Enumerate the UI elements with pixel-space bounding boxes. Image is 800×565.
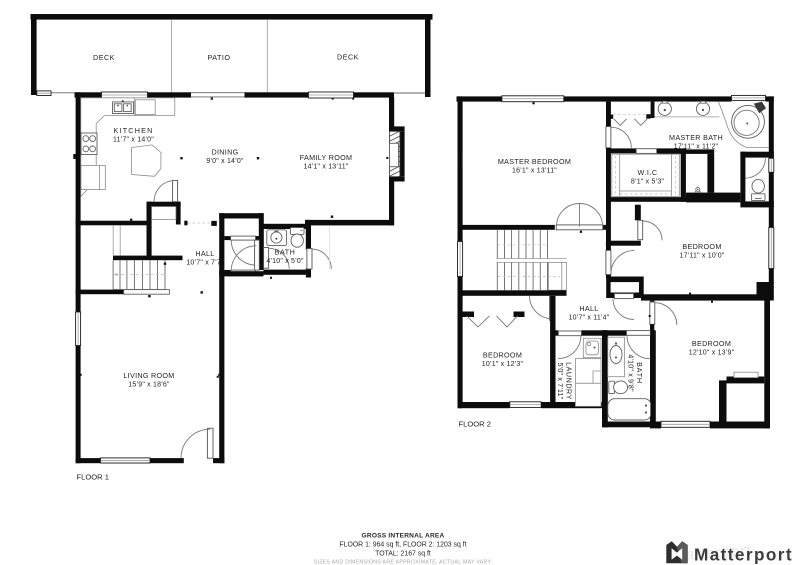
svg-text:14’1" x 13’11": 14’1" x 13’11" [303, 164, 348, 171]
svg-text:8’1" x 5’3": 8’1" x 5’3" [631, 179, 665, 186]
svg-text:GROSS INTERNAL AREA: GROSS INTERNAL AREA [362, 533, 445, 540]
svg-text:16’1" x 13’11": 16’1" x 13’11" [512, 168, 557, 175]
svg-text:12’10" x 13’9": 12’10" x 13’9" [689, 350, 735, 357]
svg-text:SIZES AND DIMENSIONS ARE APPRO: SIZES AND DIMENSIONS ARE APPROXIMATE, AC… [314, 560, 493, 565]
svg-text:FAMILY ROOM: FAMILY ROOM [300, 153, 353, 162]
svg-text:10’7" x 11’4": 10’7" x 11’4" [569, 315, 610, 322]
svg-text:HALL: HALL [195, 249, 214, 258]
svg-text:15’9" x 18’6": 15’9" x 18’6" [128, 382, 170, 389]
svg-text:11’7" x 14’0": 11’7" x 14’0" [113, 137, 154, 144]
svg-text:4’10" x 5’0": 4’10" x 5’0" [266, 258, 304, 265]
svg-text:DECK: DECK [337, 53, 359, 62]
svg-text:HALL: HALL [579, 304, 598, 313]
svg-text:DECK: DECK [93, 53, 115, 62]
svg-text:4’10" x 9’8": 4’10" x 9’8" [627, 354, 634, 392]
svg-text:FLOOR 2: FLOOR 2 [459, 420, 492, 429]
svg-text:17’11" x 10’0": 17’11" x 10’0" [679, 253, 724, 260]
svg-text:TOTAL: 2167 sq ft: TOTAL: 2167 sq ft [375, 551, 431, 558]
svg-text:BEDROOM: BEDROOM [483, 351, 522, 360]
svg-text:5’0" x 7’11": 5’0" x 7’11" [556, 363, 563, 400]
svg-text:LAUNDRY: LAUNDRY [565, 362, 574, 400]
svg-text:Matterport: Matterport [694, 545, 793, 565]
svg-text:FLOOR 1: 964 sq ft, FLOOR 2: 1: FLOOR 1: 964 sq ft, FLOOR 2: 1203 sq ft [339, 542, 466, 549]
svg-text:LIVING ROOM: LIVING ROOM [123, 371, 174, 380]
svg-text:BATH: BATH [635, 362, 644, 384]
svg-text:W.I.C: W.I.C [637, 168, 657, 177]
svg-text:PATIO: PATIO [208, 53, 231, 62]
svg-text:BEDROOM: BEDROOM [682, 242, 721, 251]
svg-text:9’0" x 14’0": 9’0" x 14’0" [206, 158, 244, 165]
svg-text:FLOOR 1: FLOOR 1 [77, 473, 110, 482]
svg-text:BEDROOM: BEDROOM [692, 339, 731, 348]
svg-text:10’7" x 7’7": 10’7" x 7’7" [186, 260, 224, 267]
svg-text:MASTER BATH: MASTER BATH [669, 133, 723, 142]
svg-text:KITCHEN: KITCHEN [114, 126, 154, 135]
svg-text:BATH: BATH [275, 248, 296, 257]
svg-text:MASTER BEDROOM: MASTER BEDROOM [498, 157, 571, 166]
svg-text:10’1" x 12’3": 10’1" x 12’3" [482, 361, 524, 368]
svg-text:DINING: DINING [212, 148, 239, 157]
